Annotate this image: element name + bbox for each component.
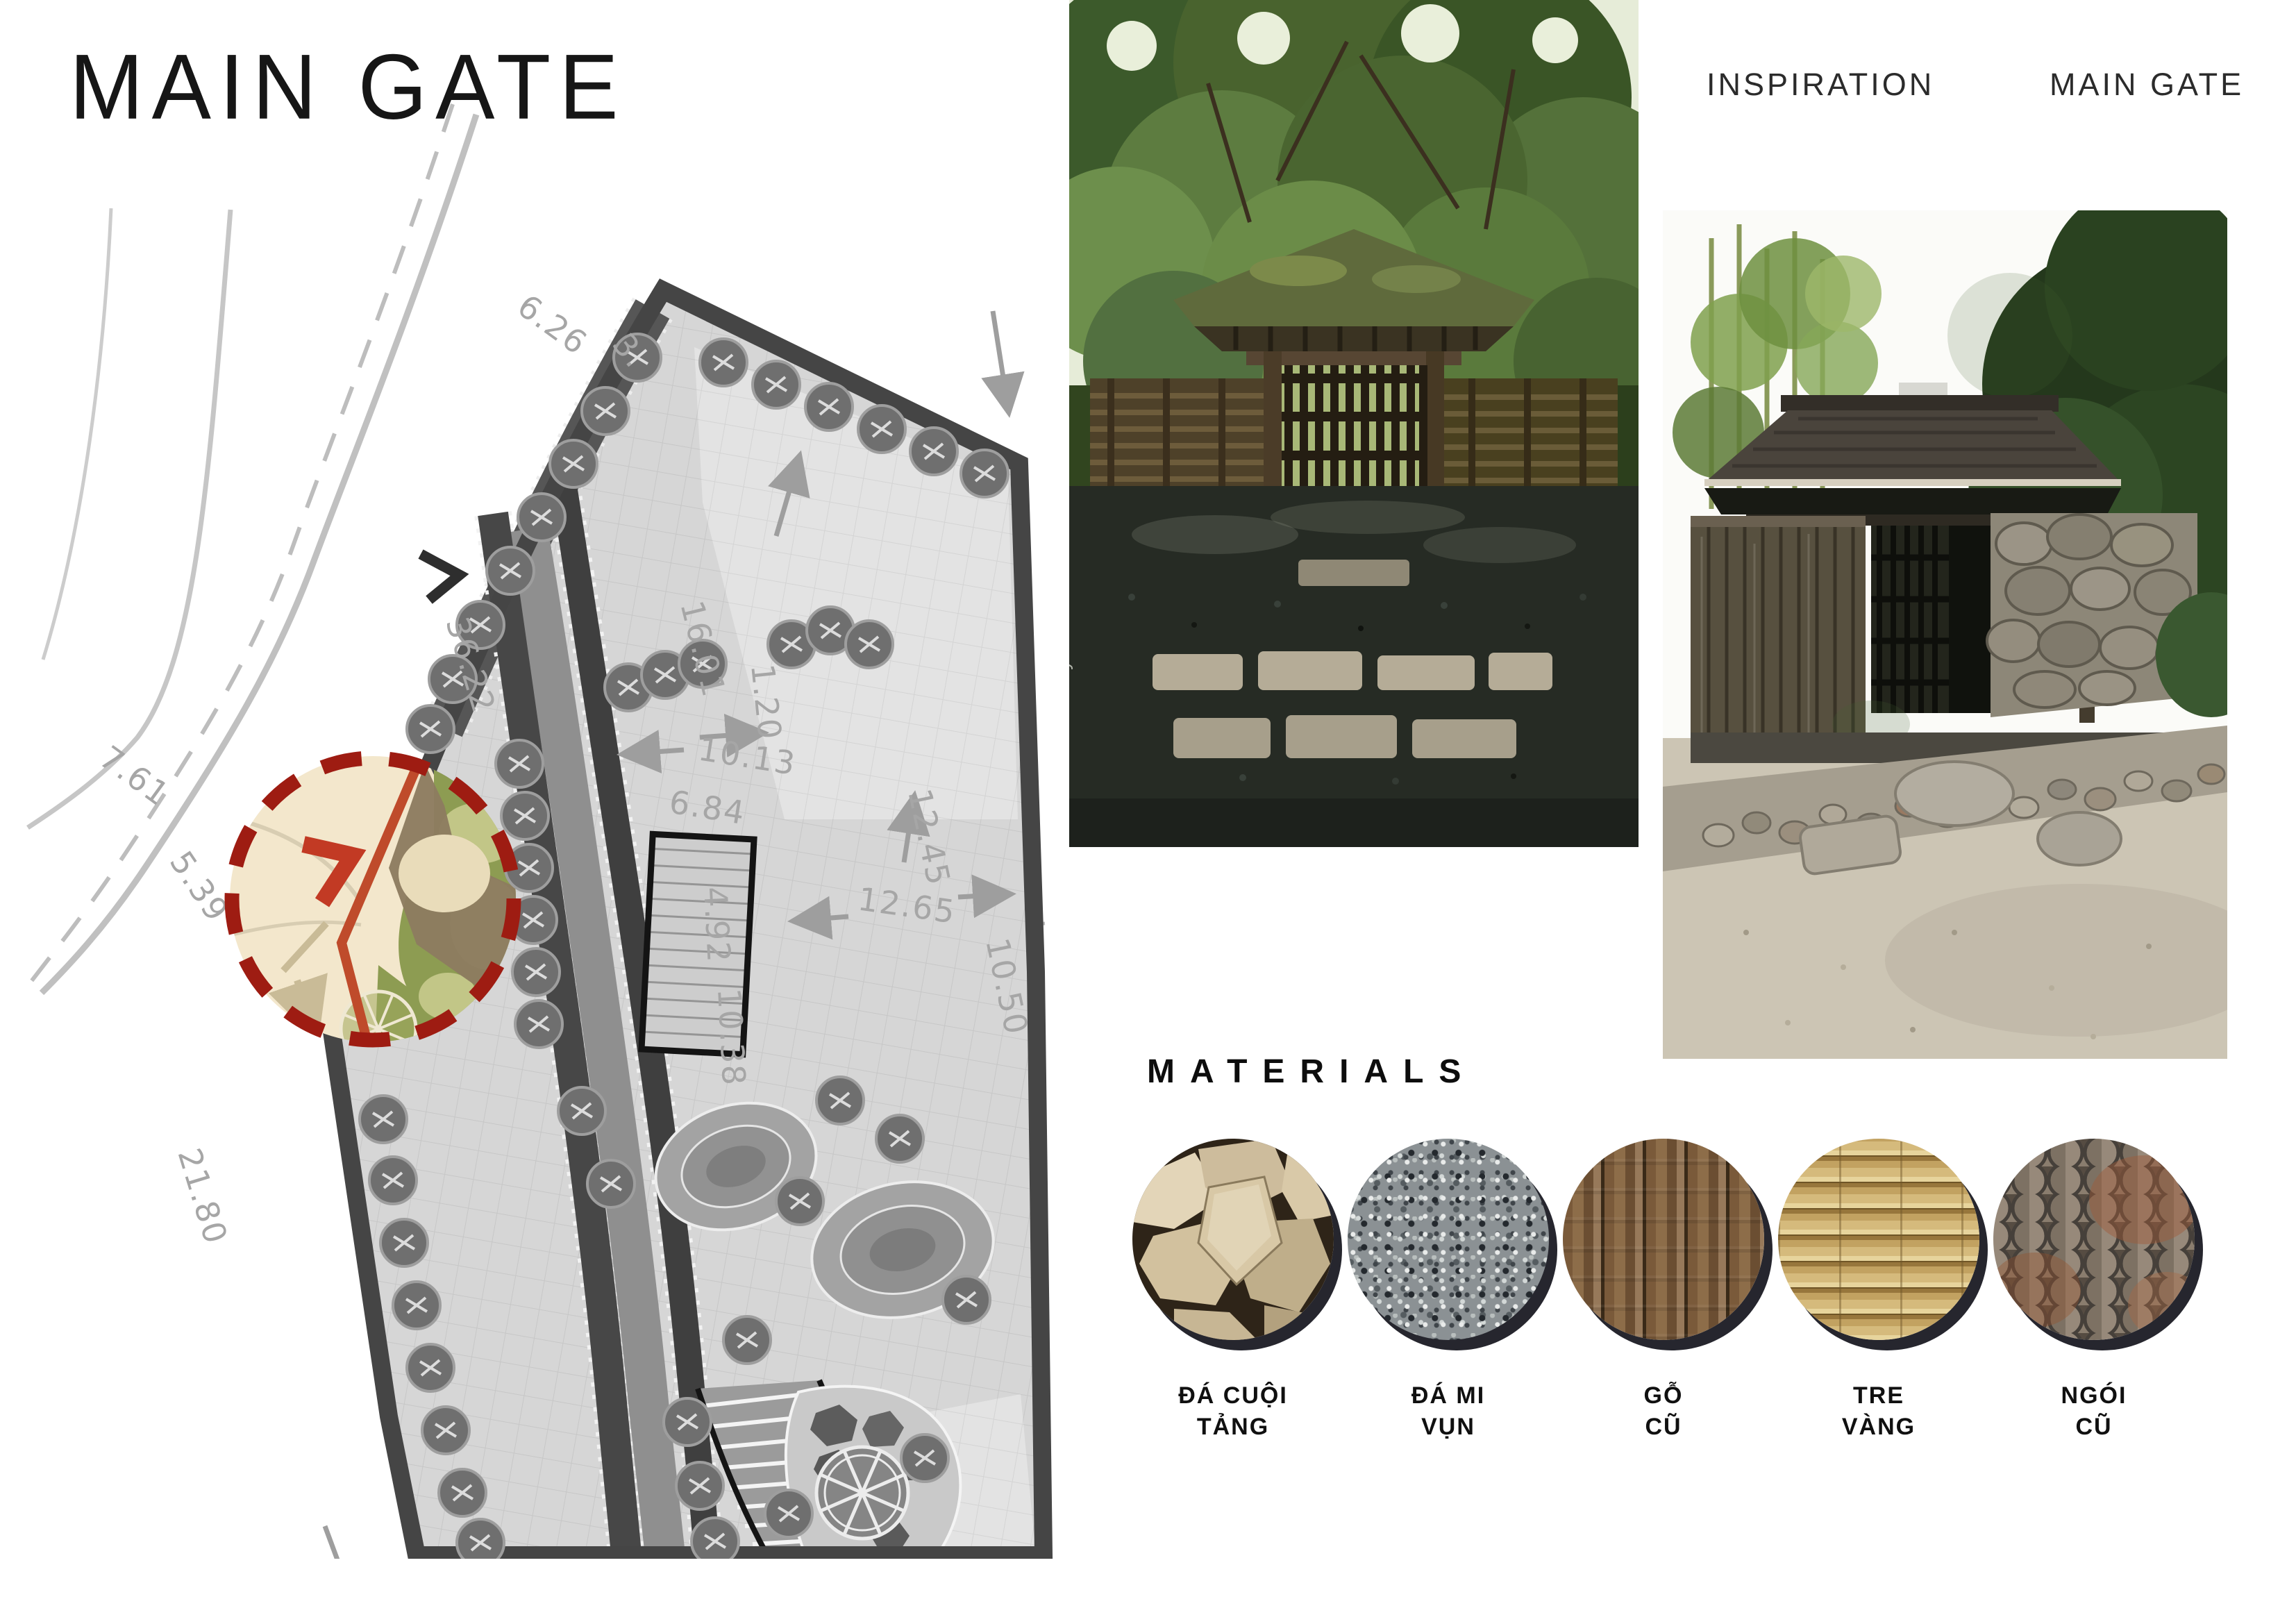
tree-symbol — [380, 1219, 428, 1266]
dimension-label: 6.26 — [511, 287, 595, 362]
stone-path-ground — [1663, 726, 2227, 1059]
tree-symbol — [664, 1398, 711, 1446]
dimension-label: 10.38 — [710, 987, 753, 1087]
gravel-foreground — [1069, 486, 1639, 847]
tree-symbol — [369, 1157, 417, 1204]
material-label: GỖCŨ — [1552, 1380, 1775, 1443]
tree-symbol — [876, 1115, 923, 1162]
tree-symbol — [393, 1282, 440, 1329]
tree-symbol — [550, 440, 597, 487]
tree-symbol — [487, 547, 534, 594]
tree-symbol — [753, 361, 800, 408]
material-swatch-boulder-rock — [1132, 1139, 1334, 1340]
material-label: ĐÁ MIVỤN — [1337, 1380, 1559, 1443]
tree-symbol — [457, 1519, 504, 1559]
tree-symbol — [558, 1087, 605, 1135]
presentation-board: MAIN GATE — [0, 0, 2296, 1624]
tree-symbol — [518, 494, 565, 541]
tree-symbol — [512, 948, 560, 996]
inspiration-photo-thatched-gate: Wells stocksy.com/874890 — [1069, 0, 1639, 847]
tree-symbol — [846, 621, 893, 668]
material-swatch-old-tile — [1993, 1139, 2195, 1340]
tree-symbol — [805, 383, 853, 430]
tree-symbol — [943, 1276, 990, 1323]
tree-symbol — [858, 405, 905, 453]
large-tree-symbol — [816, 1447, 908, 1539]
tree-symbol — [765, 1490, 812, 1537]
tree-symbol — [407, 1344, 454, 1391]
material-swatch-crushed-stone — [1348, 1139, 1549, 1340]
material-swatch-old-wood — [1563, 1139, 1764, 1340]
dimension-label: 5.39 — [162, 844, 237, 929]
tree-symbol — [910, 428, 957, 475]
material-label: TREVÀNG — [1768, 1380, 1990, 1443]
tree-symbol — [901, 1434, 948, 1482]
material-swatch-yellow-bamboo — [1778, 1139, 1979, 1340]
tree-symbol — [501, 792, 548, 839]
tree-symbol — [776, 1178, 823, 1225]
tree-symbol — [407, 705, 454, 753]
material-label: NGÓICŨ — [1983, 1380, 2205, 1443]
gate-door — [1871, 526, 1991, 713]
dimension-label: 7.61 — [93, 738, 177, 814]
tree-symbol — [496, 740, 543, 787]
tree-symbol — [439, 1469, 486, 1516]
dimension-label: 21.80 — [170, 1144, 235, 1248]
header-main-gate-label: MAIN GATE — [2050, 67, 2244, 103]
entrance-marker — [421, 554, 460, 600]
tree-symbol — [582, 387, 629, 435]
tree-symbol — [816, 1077, 864, 1124]
tree-symbol — [676, 1462, 723, 1509]
header-inspiration-label: INSPIRATION — [1707, 67, 1934, 103]
tree-symbol — [723, 1316, 771, 1364]
tree-symbol — [700, 339, 747, 386]
dimension-label: 4.92 — [696, 886, 738, 964]
photo-watermark: Wells stocksy.com/874890 — [1069, 516, 1073, 811]
inspiration-photo-tiled-gate — [1663, 210, 2227, 1059]
material-label: ĐÁ CUỘITẢNG — [1122, 1380, 1344, 1443]
dimension-label: 1.20 — [744, 662, 789, 742]
tree-symbol — [515, 1001, 562, 1048]
tree-symbol — [360, 1096, 407, 1143]
tree-symbol — [961, 450, 1008, 497]
tree-symbol — [422, 1407, 469, 1454]
site-plan-drawing: 6.263.36.2216.011.2010.136.8412.4512.651… — [21, 97, 1055, 1559]
materials-title: MATERIALS — [1147, 1053, 1476, 1091]
tree-symbol — [692, 1518, 739, 1559]
tree-symbol — [587, 1160, 635, 1207]
